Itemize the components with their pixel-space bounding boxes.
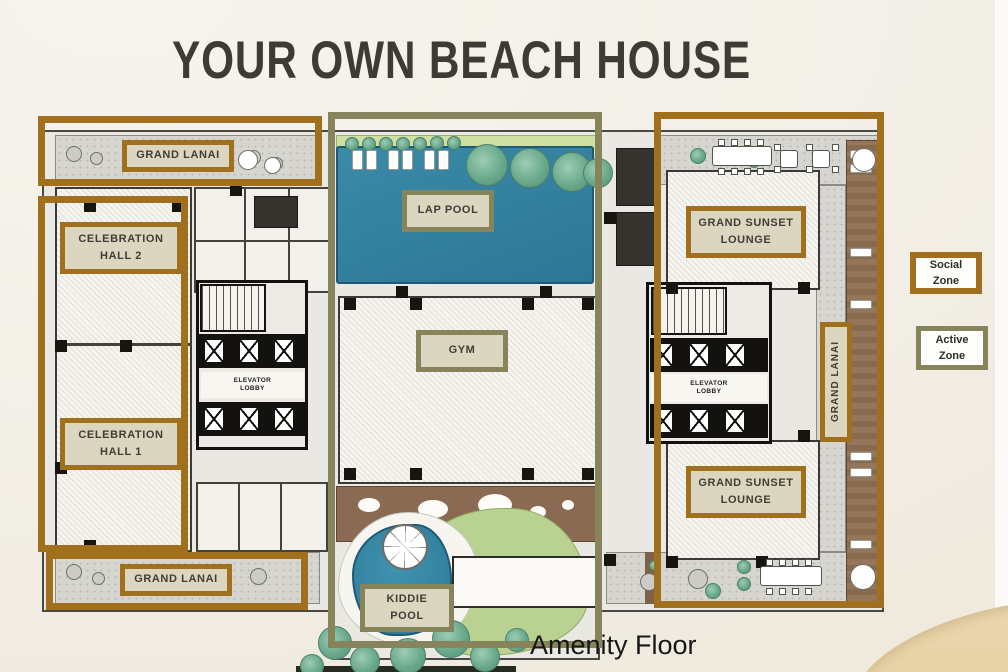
- label-celebration-hall-2: CELEBRATION HALL 2: [60, 222, 182, 274]
- label-lap-pool: LAP POOL: [402, 190, 494, 232]
- legend-active-zone: Active Zone: [916, 326, 988, 370]
- elevator-band: [650, 338, 768, 372]
- elevator-lobby-right-label: ELEVATOR LOBBY: [651, 374, 767, 402]
- floor-label: Amenity Floor: [530, 630, 697, 661]
- label-grand-lanai-bottom: GRAND LANAI: [120, 564, 232, 596]
- service-wall: [194, 240, 332, 242]
- service-rooms-bottom: [196, 482, 328, 552]
- stairs-left: [200, 284, 266, 332]
- pavilion-room: [452, 556, 598, 608]
- label-grand-sunset-lounge-lower: GRAND SUNSET LOUNGE: [686, 466, 806, 518]
- elevator-band: [199, 402, 305, 436]
- treeline-strip: [296, 666, 516, 672]
- hall-divider-wall: [55, 343, 192, 346]
- umbrella-icon: [382, 524, 428, 570]
- service-wall: [238, 482, 240, 552]
- elevator-band: [650, 404, 768, 438]
- deck-blob: [562, 500, 574, 510]
- label-grand-sunset-lounge-upper: GRAND SUNSET LOUNGE: [686, 206, 806, 258]
- label-celebration-hall-1: CELEBRATION HALL 1: [60, 418, 182, 470]
- page-edge-strip: [995, 0, 1008, 672]
- page-title: YOUR OWN BEACH HOUSE: [172, 30, 751, 91]
- label-grand-lanai-right: GRAND LANAI: [820, 322, 852, 442]
- legend-social-zone: Social Zone: [910, 252, 982, 294]
- stairs-right: [651, 287, 727, 335]
- label-grand-lanai-top: GRAND LANAI: [122, 140, 234, 172]
- utility-dark-room: [616, 212, 656, 266]
- deck-blob: [358, 498, 380, 512]
- garden-path: [645, 552, 659, 604]
- service-wall: [280, 482, 282, 552]
- beach-house-amenity-floor-page: YOUR OWN BEACH HOUSE ELEVATOR LOBBY ELEV…: [0, 0, 1008, 672]
- utility-dark-room: [616, 148, 656, 206]
- elevator-band: [199, 334, 305, 368]
- label-gym: GYM: [416, 330, 508, 372]
- gym-room: [338, 296, 598, 484]
- elevator-lobby-left-label: ELEVATOR LOBBY: [201, 372, 304, 398]
- utility-dark-room: [254, 196, 298, 228]
- label-kiddie-pool: KIDDIE POOL: [360, 584, 454, 632]
